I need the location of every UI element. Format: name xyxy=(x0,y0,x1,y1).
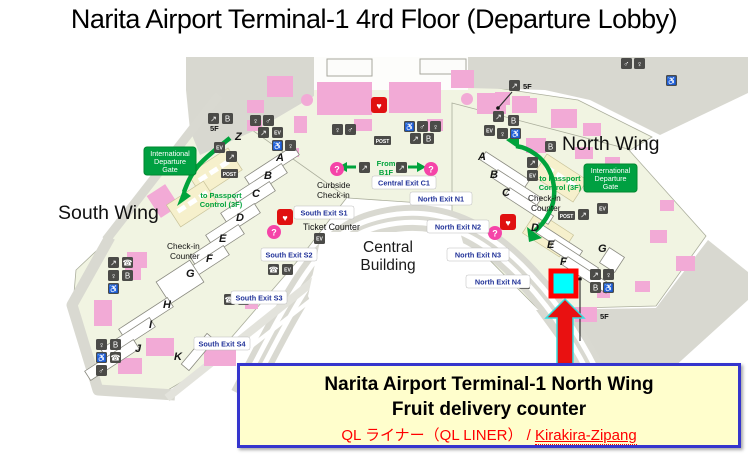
information-icon: ? xyxy=(488,226,502,240)
svg-text:B: B xyxy=(593,284,598,293)
restroom-icon: ♀ xyxy=(96,339,107,350)
restroom-icon: ♀ xyxy=(603,269,614,280)
svg-text:↗: ↗ xyxy=(592,271,599,280)
svg-text:↗: ↗ xyxy=(529,159,536,168)
restroom-icon: ♀ xyxy=(108,270,119,281)
svg-text:EV: EV xyxy=(529,174,536,180)
south-exit-s1: South Exit S1 xyxy=(300,208,347,217)
page-title: Narita Airport Terminal-1 4rd Floor (Dep… xyxy=(0,4,748,35)
from-b1f-label: From xyxy=(377,159,396,168)
svg-text:G: G xyxy=(186,268,195,280)
svg-text:Gate: Gate xyxy=(162,165,178,174)
information-icon: ? xyxy=(267,225,281,239)
svg-text:☎: ☎ xyxy=(111,354,121,363)
svg-text:♿: ♿ xyxy=(273,141,283,151)
post-icon: POST xyxy=(374,136,391,145)
svg-text:B: B xyxy=(225,115,230,124)
svg-text:?: ? xyxy=(492,229,498,239)
svg-text:♿: ♿ xyxy=(667,76,677,86)
svg-text:EV: EV xyxy=(316,237,323,243)
svg-text:♥: ♥ xyxy=(505,218,510,228)
svg-text:♿: ♿ xyxy=(511,129,521,139)
restroom-icon: ♂ xyxy=(263,115,274,126)
svg-text:♀: ♀ xyxy=(253,117,259,126)
ticket-counter-label: Ticket Counter xyxy=(303,222,360,232)
wheelchair-icon: ♿ xyxy=(272,140,283,151)
kirakira-zipang-link[interactable]: Kirakira-Zipang xyxy=(535,427,637,445)
escalator-icon: ↗ xyxy=(359,162,370,173)
elevator-icon: EV xyxy=(282,264,293,275)
svg-text:EV: EV xyxy=(284,268,291,274)
svg-text:♂: ♂ xyxy=(266,117,272,126)
north-exit-n2: North Exit N2 xyxy=(435,222,481,231)
wheelchair-icon: ♿ xyxy=(603,282,614,293)
svg-text:EV: EV xyxy=(486,129,493,135)
svg-text:↗: ↗ xyxy=(495,113,502,122)
svg-text:Building: Building xyxy=(360,257,415,274)
svg-text:♀: ♀ xyxy=(637,60,643,69)
svg-text:D: D xyxy=(236,212,244,224)
svg-text:?: ? xyxy=(428,165,434,175)
escalator-icon: ↗ xyxy=(493,111,504,122)
svg-text:EV: EV xyxy=(274,131,281,137)
svg-text:POST: POST xyxy=(560,214,574,220)
svg-text:♀: ♀ xyxy=(99,341,105,350)
svg-text:Counter: Counter xyxy=(531,203,561,213)
svg-text:♥: ♥ xyxy=(376,101,381,111)
restroom-icon: ♀ xyxy=(332,124,343,135)
elevator-icon: EV xyxy=(214,142,225,153)
restroom-icon: ♂ xyxy=(96,365,107,376)
annotation-line1: Narita Airport Terminal-1 North Wing xyxy=(240,372,738,397)
escalator-icon: ↗ xyxy=(578,209,589,220)
information-icon: ? xyxy=(330,162,344,176)
aed-icon: ♥ xyxy=(371,97,387,113)
wheelchair-icon: ♿ xyxy=(96,352,107,363)
annotation-line3: QL ライナー（QL LINER） / Kirakira-Zipang xyxy=(240,424,738,445)
south-exit-s2: South Exit S2 xyxy=(265,250,312,259)
svg-text:♂: ♂ xyxy=(420,123,426,132)
restroom-icon: ♀ xyxy=(634,58,645,69)
svg-text:↗: ↗ xyxy=(412,135,419,144)
elevator-icon: EV xyxy=(484,125,495,136)
phone-icon: ☎ xyxy=(268,264,279,275)
south-wing-label: South Wing xyxy=(58,202,159,224)
svg-text:D: D xyxy=(531,222,539,234)
svg-text:♀: ♀ xyxy=(500,130,506,139)
passport-control-label: to Passport xyxy=(200,191,242,200)
svg-text:F: F xyxy=(560,256,567,268)
svg-text:A: A xyxy=(275,152,284,164)
baggage-icon: B xyxy=(122,270,133,281)
phone-icon: ☎ xyxy=(110,352,121,363)
svg-text:?: ? xyxy=(334,165,340,175)
restroom-icon: ♂ xyxy=(345,124,356,135)
svg-text:C: C xyxy=(502,187,511,199)
aed-icon: ♥ xyxy=(500,214,516,230)
svg-text:♀: ♀ xyxy=(288,142,294,151)
svg-text:B1F: B1F xyxy=(379,168,394,177)
escalator-icon: ↗ xyxy=(410,133,421,144)
central-building-label: Central xyxy=(363,239,413,256)
escalator-icon: ↗ xyxy=(258,127,269,138)
restroom-icon: ♀ xyxy=(497,128,508,139)
svg-text:Check-in: Check-in xyxy=(317,190,350,200)
north-exit-n4: North Exit N4 xyxy=(475,277,522,286)
escalator-icon: ↗ xyxy=(108,257,119,268)
svg-text:♂: ♂ xyxy=(99,367,105,376)
svg-text:EV: EV xyxy=(216,146,223,152)
elevator-icon: EV xyxy=(272,127,283,138)
svg-text:♀: ♀ xyxy=(335,126,341,135)
south-exit-s3: South Exit S3 xyxy=(235,293,282,302)
svg-text:↗: ↗ xyxy=(110,259,117,268)
svg-text:↗: ↗ xyxy=(511,82,518,91)
svg-text:POST: POST xyxy=(376,139,390,145)
baggage-icon: B xyxy=(110,339,121,350)
svg-text:Counter: Counter xyxy=(170,251,200,261)
svg-text:B: B xyxy=(125,272,130,281)
svg-text:Control (3F): Control (3F) xyxy=(200,200,243,209)
restroom-icon: ♀ xyxy=(250,115,261,126)
curbside-checkin-label: Curbside xyxy=(317,180,351,190)
svg-text:B: B xyxy=(490,169,498,181)
svg-text:↗: ↗ xyxy=(580,211,587,220)
svg-text:♂: ♂ xyxy=(348,126,354,135)
fruit-counter-highlight xyxy=(551,271,576,296)
restroom-icon: ♂ xyxy=(621,58,632,69)
svg-text:↗: ↗ xyxy=(210,115,217,124)
elevator-icon: EV xyxy=(597,203,608,214)
wheelchair-icon: ♿ xyxy=(510,128,521,139)
svg-text:↗: ↗ xyxy=(398,164,405,173)
baggage-icon: B xyxy=(222,113,233,124)
svg-text:G: G xyxy=(598,243,607,255)
aed-icon: ♥ xyxy=(277,209,293,225)
svg-text:Z: Z xyxy=(234,131,243,143)
baggage-icon: B xyxy=(590,282,601,293)
international-departure-gate-north: International Departure Gate xyxy=(584,164,637,192)
svg-text:F: F xyxy=(206,253,213,265)
passport-control-label: to Passport xyxy=(539,174,581,183)
restroom-icon: ♀ xyxy=(285,140,296,151)
svg-text:B: B xyxy=(264,170,272,182)
svg-text:B: B xyxy=(113,341,118,350)
international-departure-gate-south: International Departure Gate xyxy=(144,147,196,175)
floor-5f-label: 5F xyxy=(600,312,609,321)
svg-text:↗: ↗ xyxy=(228,153,235,162)
annotation-vendor-text: QL ライナー（QL LINER） / xyxy=(341,427,535,444)
svg-text:B: B xyxy=(511,117,516,126)
svg-text:EV: EV xyxy=(599,207,606,213)
baggage-icon: B xyxy=(508,115,519,126)
annotation-line2: Fruit delivery counter xyxy=(240,397,738,422)
checkin-counter-label: Check-in xyxy=(167,241,200,251)
restroom-icon: ♀ xyxy=(430,121,441,132)
escalator-icon: ↗ xyxy=(208,113,219,124)
svg-text:☎: ☎ xyxy=(123,259,133,268)
escalator-icon: ↗ xyxy=(396,162,407,173)
svg-text:A: A xyxy=(477,151,486,163)
svg-text:↗: ↗ xyxy=(361,164,368,173)
phone-icon: ☎ xyxy=(122,257,133,268)
elevator-icon: EV xyxy=(527,170,538,181)
svg-text:B: B xyxy=(426,135,431,144)
checkin-counter-label: Check-in xyxy=(528,193,561,203)
information-icon: ? xyxy=(424,162,438,176)
svg-text:♀: ♀ xyxy=(606,271,612,280)
svg-text:?: ? xyxy=(271,228,277,238)
wheelchair-icon: ♿ xyxy=(666,75,677,86)
floor-5f-label: 5F xyxy=(210,124,219,133)
escalator-icon: ↗ xyxy=(509,80,520,91)
svg-text:C: C xyxy=(252,188,261,200)
escalator-icon: ↗ xyxy=(590,269,601,280)
north-wing-label: North Wing xyxy=(562,133,660,155)
svg-text:J: J xyxy=(135,343,142,355)
svg-text:♀: ♀ xyxy=(433,123,439,132)
svg-text:H: H xyxy=(163,299,172,311)
post-icon: POST xyxy=(221,169,238,178)
svg-text:♿: ♿ xyxy=(405,122,415,132)
wheelchair-icon: ♿ xyxy=(108,283,119,294)
svg-text:POST: POST xyxy=(223,172,237,178)
svg-text:♥: ♥ xyxy=(282,213,287,223)
escalator-icon: ↗ xyxy=(527,157,538,168)
svg-text:Gate: Gate xyxy=(603,182,619,191)
floor-5f-label: 5F xyxy=(523,82,532,91)
elevator-icon: EV xyxy=(314,233,325,244)
north-exit-n3: North Exit N3 xyxy=(455,250,501,259)
svg-text:B: B xyxy=(548,143,553,152)
restroom-icon: ♂ xyxy=(417,121,428,132)
svg-text:Control (3F): Control (3F) xyxy=(539,183,582,192)
svg-text:E: E xyxy=(219,233,227,245)
wheelchair-icon: ♿ xyxy=(404,121,415,132)
annotation-box: Narita Airport Terminal-1 North Wing Fru… xyxy=(237,363,741,448)
svg-text:♿: ♿ xyxy=(109,284,119,294)
svg-text:↗: ↗ xyxy=(260,129,267,138)
post-icon: POST xyxy=(558,211,575,220)
baggage-icon: B xyxy=(545,141,556,152)
svg-text:K: K xyxy=(174,351,183,363)
baggage-icon: B xyxy=(423,133,434,144)
svg-text:☎: ☎ xyxy=(269,266,279,275)
svg-text:♀: ♀ xyxy=(111,272,117,281)
central-exit-c1: Central Exit C1 xyxy=(378,178,430,187)
escalator-icon: ↗ xyxy=(226,151,237,162)
south-exit-s4: South Exit S4 xyxy=(198,339,246,348)
north-exit-n1: North Exit N1 xyxy=(418,194,464,203)
svg-text:♂: ♂ xyxy=(624,60,630,69)
svg-text:♿: ♿ xyxy=(604,283,614,293)
svg-text:E: E xyxy=(547,239,555,251)
svg-text:♿: ♿ xyxy=(97,353,107,363)
